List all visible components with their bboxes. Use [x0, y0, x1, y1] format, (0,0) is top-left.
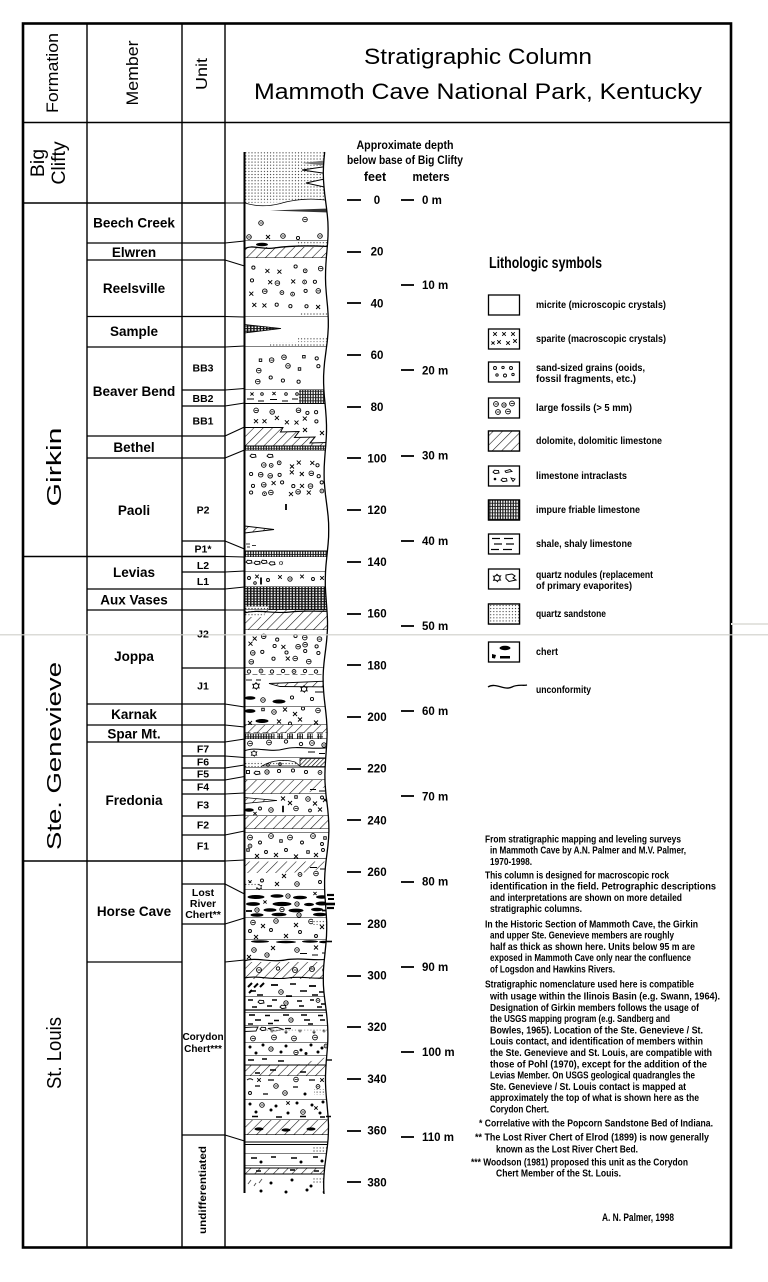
svg-text:dolomite, dolomitic limestone: dolomite, dolomitic limestone — [536, 435, 662, 447]
svg-text:** The Lost River Chert of Elr: ** The Lost River Chert of Elrod (1899) … — [475, 1133, 709, 1144]
svg-text:1970-1998.: 1970-1998. — [490, 857, 532, 868]
svg-text:20 m: 20 m — [422, 365, 448, 377]
svg-text:approximately the top of what: approximately the top of what is shown h… — [490, 1093, 699, 1104]
svg-text:fossil fragments, etc.): fossil fragments, etc.) — [536, 373, 636, 385]
svg-text:Elwren: Elwren — [112, 245, 156, 260]
svg-text:micrite (microscopic crystals): micrite (microscopic crystals) — [536, 299, 666, 311]
svg-text:the Ste. Genevieve and St. Lou: the Ste. Genevieve and St. Louis, are co… — [490, 1048, 712, 1059]
svg-text:Stratigraphic nomenclature use: Stratigraphic nomenclature used here is … — [485, 980, 694, 991]
svg-text:P1*: P1* — [195, 544, 213, 556]
svg-text:unconformity: unconformity — [536, 684, 591, 696]
svg-text:in Mammoth Cave by A.N. Palmer: in Mammoth Cave by A.N. Palmer and M.V. … — [490, 846, 686, 857]
svg-text:those of Pohl (1970), except f: those of Pohl (1970), except for the add… — [490, 1059, 708, 1070]
svg-text:Lithologic symbols: Lithologic symbols — [489, 255, 602, 272]
svg-text:Joppa: Joppa — [114, 649, 154, 664]
svg-text:100 m: 100 m — [422, 1047, 455, 1059]
svg-text:Corydon: Corydon — [182, 1032, 223, 1043]
svg-text:Member: Member — [124, 40, 142, 106]
svg-text:F6: F6 — [197, 757, 209, 769]
svg-text:Bowles, 1965). Location of the: Bowles, 1965). Location of the Ste. Gene… — [490, 1025, 703, 1036]
svg-text:BB2: BB2 — [192, 393, 213, 405]
svg-text:Levias Member. On USGS geologi: Levias Member. On USGS geological quadra… — [490, 1071, 695, 1082]
svg-text:80 m: 80 m — [422, 877, 448, 889]
svg-text:220: 220 — [367, 764, 386, 776]
svg-text:undifferentiated: undifferentiated — [197, 1146, 209, 1234]
svg-text:140: 140 — [367, 557, 386, 569]
svg-text:of primary evaporites): of primary evaporites) — [536, 580, 632, 592]
svg-text:80: 80 — [371, 402, 384, 414]
svg-text:200: 200 — [367, 712, 386, 724]
svg-text:* Correlative with the Popcorn: * Correlative with the Popcorn Sandstone… — [479, 1119, 713, 1130]
svg-text:A. N. Palmer, 1998: A. N. Palmer, 1998 — [602, 1212, 674, 1224]
svg-text:Beaver Bend: Beaver Bend — [93, 384, 176, 399]
svg-text:This column is designed for ma: This column is designed for macroscopic … — [485, 871, 669, 882]
svg-text:Fredonia: Fredonia — [105, 793, 162, 808]
svg-text:Ste. Genevieve: Ste. Genevieve — [44, 662, 66, 850]
svg-text:Beech Creek: Beech Creek — [93, 216, 175, 231]
svg-text:Bethel: Bethel — [113, 440, 154, 455]
svg-text:Sample: Sample — [110, 324, 159, 339]
svg-text:P2: P2 — [197, 505, 210, 517]
svg-text:Big: Big — [27, 149, 49, 177]
svg-text:St. Louis: St. Louis — [44, 1017, 66, 1089]
svg-text:L1: L1 — [197, 576, 209, 588]
svg-text:Spar Mt.: Spar Mt. — [107, 727, 160, 742]
svg-text:Chert***: Chert*** — [184, 1044, 222, 1055]
svg-text:60 m: 60 m — [422, 706, 448, 718]
svg-text:Formation: Formation — [44, 33, 62, 113]
svg-text:240: 240 — [367, 815, 386, 827]
svg-text:Designation of Girkin members: Designation of Girkin members follows th… — [490, 1003, 700, 1014]
svg-text:Stratigraphic Column: Stratigraphic Column — [364, 44, 592, 69]
svg-text:120: 120 — [367, 505, 386, 517]
svg-text:BB3: BB3 — [192, 363, 213, 375]
svg-text:Karnak: Karnak — [111, 707, 157, 722]
svg-text:half as thick as shown here. U: half as thick as shown here. Units below… — [490, 942, 695, 953]
svg-text:F1: F1 — [197, 841, 209, 853]
svg-text:Clifty: Clifty — [48, 141, 70, 185]
svg-text:100: 100 — [367, 454, 386, 466]
svg-text:*** Woodson (1981) proposed th: *** Woodson (1981) proposed this unit as… — [471, 1158, 688, 1169]
svg-text:of Logsdon and Hawkins Rivers.: of Logsdon and Hawkins Rivers. — [490, 964, 615, 975]
svg-text:J1: J1 — [197, 681, 209, 693]
svg-text:Ste. Genevieve / St. Louis con: Ste. Genevieve / St. Louis contact is ma… — [490, 1082, 687, 1093]
svg-text:Approximate depth: Approximate depth — [357, 140, 454, 152]
svg-text:In the Historic Section of Mam: In the Historic Section of Mammoth Cave,… — [485, 920, 698, 931]
svg-text:sparite (macroscopic crystals): sparite (macroscopic crystals) — [536, 333, 666, 345]
svg-text:Chert Member of the St. Louis.: Chert Member of the St. Louis. — [496, 1169, 621, 1180]
svg-text:quartz sandstone: quartz sandstone — [536, 608, 606, 620]
svg-text:F4: F4 — [197, 782, 209, 794]
svg-text:300: 300 — [367, 971, 386, 983]
svg-text:Chert**: Chert** — [185, 909, 222, 921]
svg-text:Unit: Unit — [194, 57, 211, 90]
svg-text:BB1: BB1 — [192, 416, 213, 428]
svg-text:F5: F5 — [197, 769, 209, 781]
svg-text:90 m: 90 m — [422, 962, 448, 974]
svg-text:and upper Ste. Genevieve membe: and upper Ste. Genevieve members are rou… — [490, 931, 674, 942]
svg-text:F7: F7 — [197, 744, 209, 756]
svg-text:360: 360 — [367, 1126, 386, 1138]
svg-text:below base of Big Clifty: below base of Big Clifty — [347, 155, 464, 167]
svg-text:Horse Cave: Horse Cave — [97, 904, 172, 919]
svg-text:30 m: 30 m — [422, 451, 448, 463]
svg-text:F2: F2 — [197, 820, 209, 832]
svg-text:280: 280 — [367, 919, 386, 931]
svg-text:Levias: Levias — [113, 565, 155, 580]
svg-text:exposed in Mammoth Cave only n: exposed in Mammoth Cave only near the co… — [490, 953, 691, 964]
svg-text:From stratigraphic mapping and: From stratigraphic mapping and leveling … — [485, 835, 681, 846]
svg-text:20: 20 — [371, 247, 384, 259]
svg-text:impure friable limestone: impure friable limestone — [536, 504, 640, 516]
svg-text:the USGS mapping program (e.g.: the USGS mapping program (e.g. Sandberg … — [490, 1014, 670, 1025]
svg-text:40 m: 40 m — [422, 536, 448, 548]
svg-text:limestone intraclasts: limestone intraclasts — [536, 470, 627, 482]
svg-text:chert: chert — [536, 646, 558, 658]
svg-text:feet: feet — [364, 170, 387, 184]
svg-text:meters: meters — [413, 170, 450, 184]
svg-text:340: 340 — [367, 1074, 386, 1086]
svg-text:F3: F3 — [197, 800, 209, 812]
svg-text:and interpretations are shown: and interpretations are shown on more de… — [490, 893, 682, 904]
svg-text:with usage within the Ilinois: with usage within the Ilinois Basin (e.g… — [489, 992, 720, 1003]
svg-text:L2: L2 — [197, 560, 209, 572]
svg-text:70 m: 70 m — [422, 791, 448, 803]
svg-text:0 m: 0 m — [422, 195, 442, 207]
svg-text:60: 60 — [371, 350, 384, 362]
svg-text:40: 40 — [371, 298, 384, 310]
svg-text:Girkin: Girkin — [44, 428, 66, 507]
svg-text:180: 180 — [367, 660, 386, 672]
svg-text:large fossils (> 5 mm): large fossils (> 5 mm) — [536, 402, 632, 414]
svg-text:260: 260 — [367, 867, 386, 879]
svg-text:0: 0 — [374, 195, 380, 207]
svg-text:50 m: 50 m — [422, 621, 448, 633]
svg-text:Louis contact, and identificat: Louis contact, and identification of mem… — [490, 1037, 703, 1048]
svg-text:Aux Vases: Aux Vases — [100, 593, 168, 608]
svg-text:identification in the field. P: identification in the field. Petrographi… — [490, 882, 717, 893]
svg-text:Reelsville: Reelsville — [103, 281, 166, 296]
svg-text:110 m: 110 m — [422, 1132, 454, 1144]
svg-text:160: 160 — [367, 609, 386, 621]
svg-text:10 m: 10 m — [422, 280, 448, 292]
svg-text:Mammoth Cave National Park, Ke: Mammoth Cave National Park, Kentucky — [254, 79, 703, 104]
svg-text:Paoli: Paoli — [118, 503, 150, 518]
svg-text:320: 320 — [367, 1022, 386, 1034]
svg-text:shale, shaly limestone: shale, shaly limestone — [536, 538, 632, 550]
svg-text:known as the Lost River Chert: known as the Lost River Chert Bed. — [496, 1145, 638, 1156]
svg-text:stratigraphic columns.: stratigraphic columns. — [490, 904, 582, 915]
svg-text:Corydon Chert.: Corydon Chert. — [490, 1105, 549, 1116]
svg-text:380: 380 — [367, 1177, 386, 1189]
